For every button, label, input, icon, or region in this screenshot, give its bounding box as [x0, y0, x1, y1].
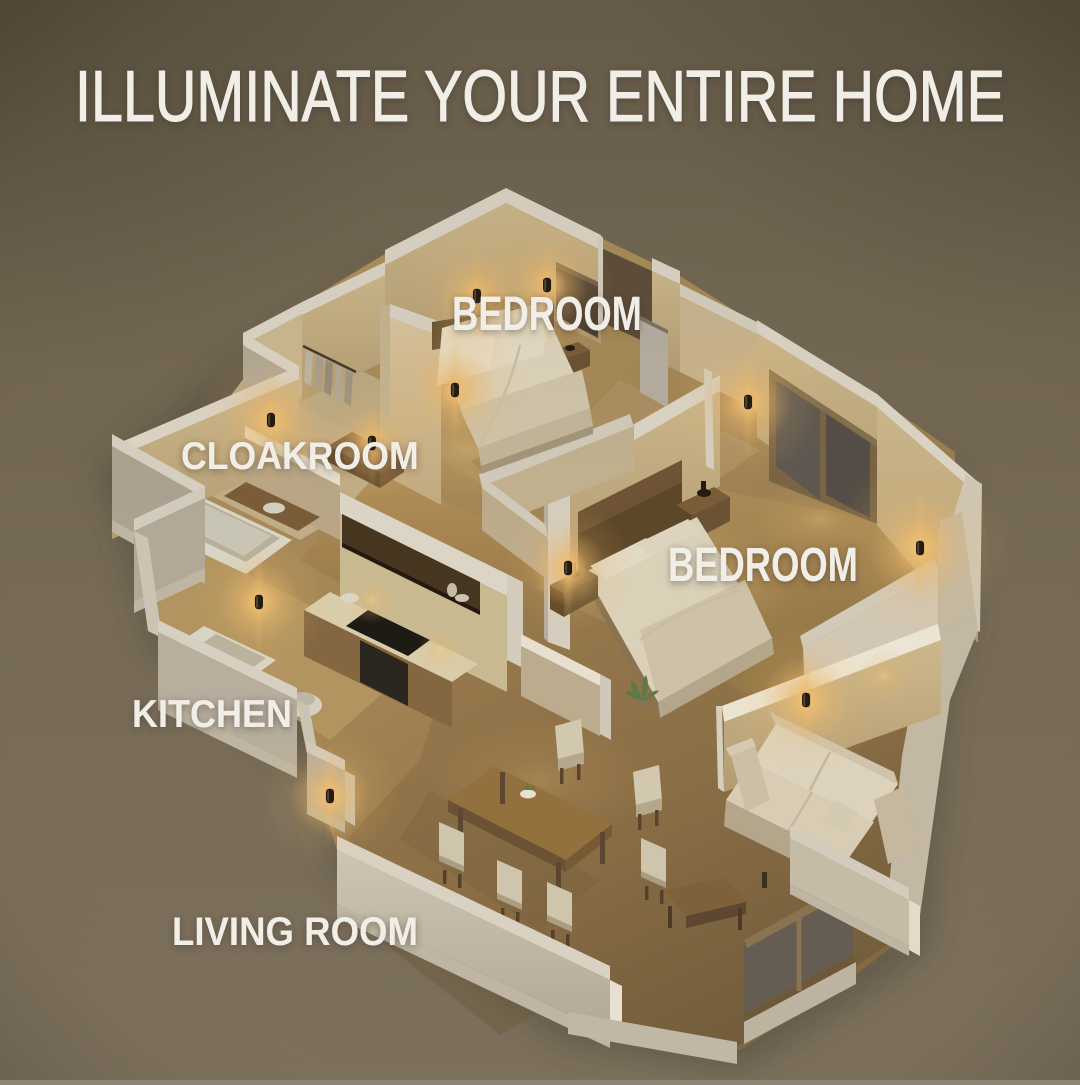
svg-text:CLOAKROOM: CLOAKROOM	[181, 434, 419, 478]
svg-text:LIVING ROOM: LIVING ROOM	[172, 910, 418, 955]
svg-text:BEDROOM: BEDROOM	[668, 538, 858, 592]
svg-text:KITCHEN: KITCHEN	[132, 692, 292, 736]
svg-text:BEDROOM: BEDROOM	[452, 287, 642, 341]
svg-text:ILLUMINATE YOUR ENTIRE HOME: ILLUMINATE YOUR ENTIRE HOME	[75, 56, 1005, 137]
